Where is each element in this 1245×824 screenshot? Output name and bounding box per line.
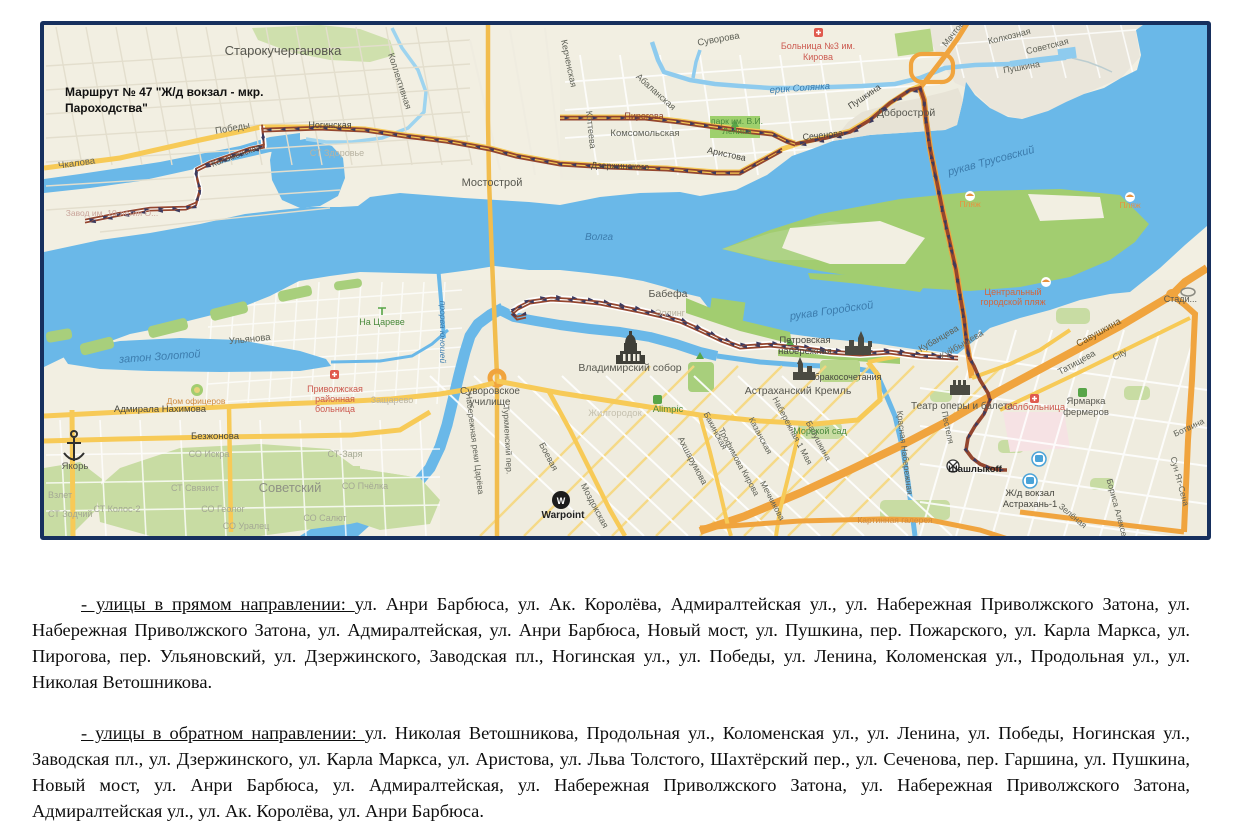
svg-text:Взлет: Взлет [48,490,72,500]
svg-text:бракосочетания: бракосочетания [815,372,882,382]
svg-text:Владимирский собор: Владимирский собор [578,362,681,374]
svg-text:Маршрут № 47 "Ж/д вокзал - мкр: Маршрут № 47 "Ж/д вокзал - мкр. [65,85,263,99]
svg-text:Больница №3 им.: Больница №3 им. [781,41,855,51]
svg-text:парк им. В.И.: парк им. В.И. [711,116,763,126]
svg-text:Защарево: Защарево [371,395,414,405]
svg-text:Шашлыкоff: Шашлыкоff [948,464,1002,475]
svg-text:Центральный: Центральный [984,287,1041,297]
svg-text:Эллинг: Эллинг [655,308,686,318]
svg-text:Стади...: Стади... [1164,294,1197,304]
svg-text:Пляж: Пляж [1119,200,1141,210]
svg-text:Добрострой: Добрострой [877,107,936,119]
svg-text:Волга: Волга [585,232,613,243]
svg-text:Безжонова: Безжонова [191,431,240,442]
svg-text:Облбольница: Облбольница [1005,402,1066,413]
svg-text:больница: больница [315,404,355,414]
svg-text:Дом офицеров: Дом офицеров [167,396,226,406]
svg-text:Бабефа: Бабефа [649,288,688,300]
svg-text:СТ Связист: СТ Связист [171,483,219,493]
svg-text:СО Геолог: СО Геолог [201,504,245,514]
svg-text:СО Искра: СО Искра [189,449,230,459]
svg-text:Картинная галерея: Картинная галерея [857,515,933,525]
svg-text:Ногинская: Ногинская [308,120,351,130]
svg-text:фермеров: фермеров [1063,407,1109,418]
svg-text:городской пляж: городской пляж [980,297,1045,307]
svg-text:Якорь: Якорь [62,461,89,472]
svg-text:Советский: Советский [259,480,322,495]
svg-text:Alimpic: Alimpic [653,404,684,415]
svg-text:Старокучергановка: Старокучергановка [225,43,342,58]
svg-text:Комсомольская: Комсомольская [610,128,679,139]
svg-text:СТ Колос-2: СТ Колос-2 [93,504,140,514]
svg-text:Приволжская: Приволжская [307,384,363,394]
svg-text:Астрахань-1: Астрахань-1 [1003,499,1058,510]
svg-text:Дзержинского: Дзержинского [591,160,649,172]
svg-text:Театр оперы и балета: Театр оперы и балета [911,400,1013,412]
svg-text:Морской сад: Морской сад [793,426,847,436]
svg-text:Кирова: Кирова [803,52,833,62]
svg-text:Жилгородок: Жилгородок [588,408,642,419]
svg-text:Мостострой: Мостострой [462,177,523,189]
svg-text:На Цареве: На Цареве [359,317,405,327]
svg-text:Завод им. 10-летия О...: Завод им. 10-летия О... [66,208,158,218]
svg-text:Ярмарка: Ярмарка [1067,396,1107,407]
svg-text:Петровская: Петровская [779,335,830,346]
svg-text:прорва юношей: прорва юношей [438,301,448,364]
svg-text:Ленина: Ленина [722,126,751,136]
svg-text:набережная: набережная [778,346,832,357]
svg-text:районная: районная [315,394,355,404]
svg-text:СО Уралец: СО Уралец [223,521,270,531]
svg-text:Астраханский Кремль: Астраханский Кремль [745,385,852,397]
svg-text:СО Салют: СО Салют [303,513,346,523]
svg-text:Пляж: Пляж [959,199,981,209]
svg-text:СТ-Заря: СТ-Заря [328,449,363,459]
svg-text:W: W [557,496,566,506]
svg-text:Ж/д вокзал: Ж/д вокзал [1005,488,1054,499]
svg-text:СТ Здоровье: СТ Здоровье [310,148,364,158]
svg-text:СТ Зодчий: СТ Зодчий [48,509,92,519]
svg-text:Пирогова: Пирогова [624,111,663,121]
svg-text:СО Пчёлка: СО Пчёлка [342,481,388,491]
svg-text:Warpoint: Warpoint [542,510,586,521]
svg-text:Пароходства": Пароходства" [65,101,148,115]
